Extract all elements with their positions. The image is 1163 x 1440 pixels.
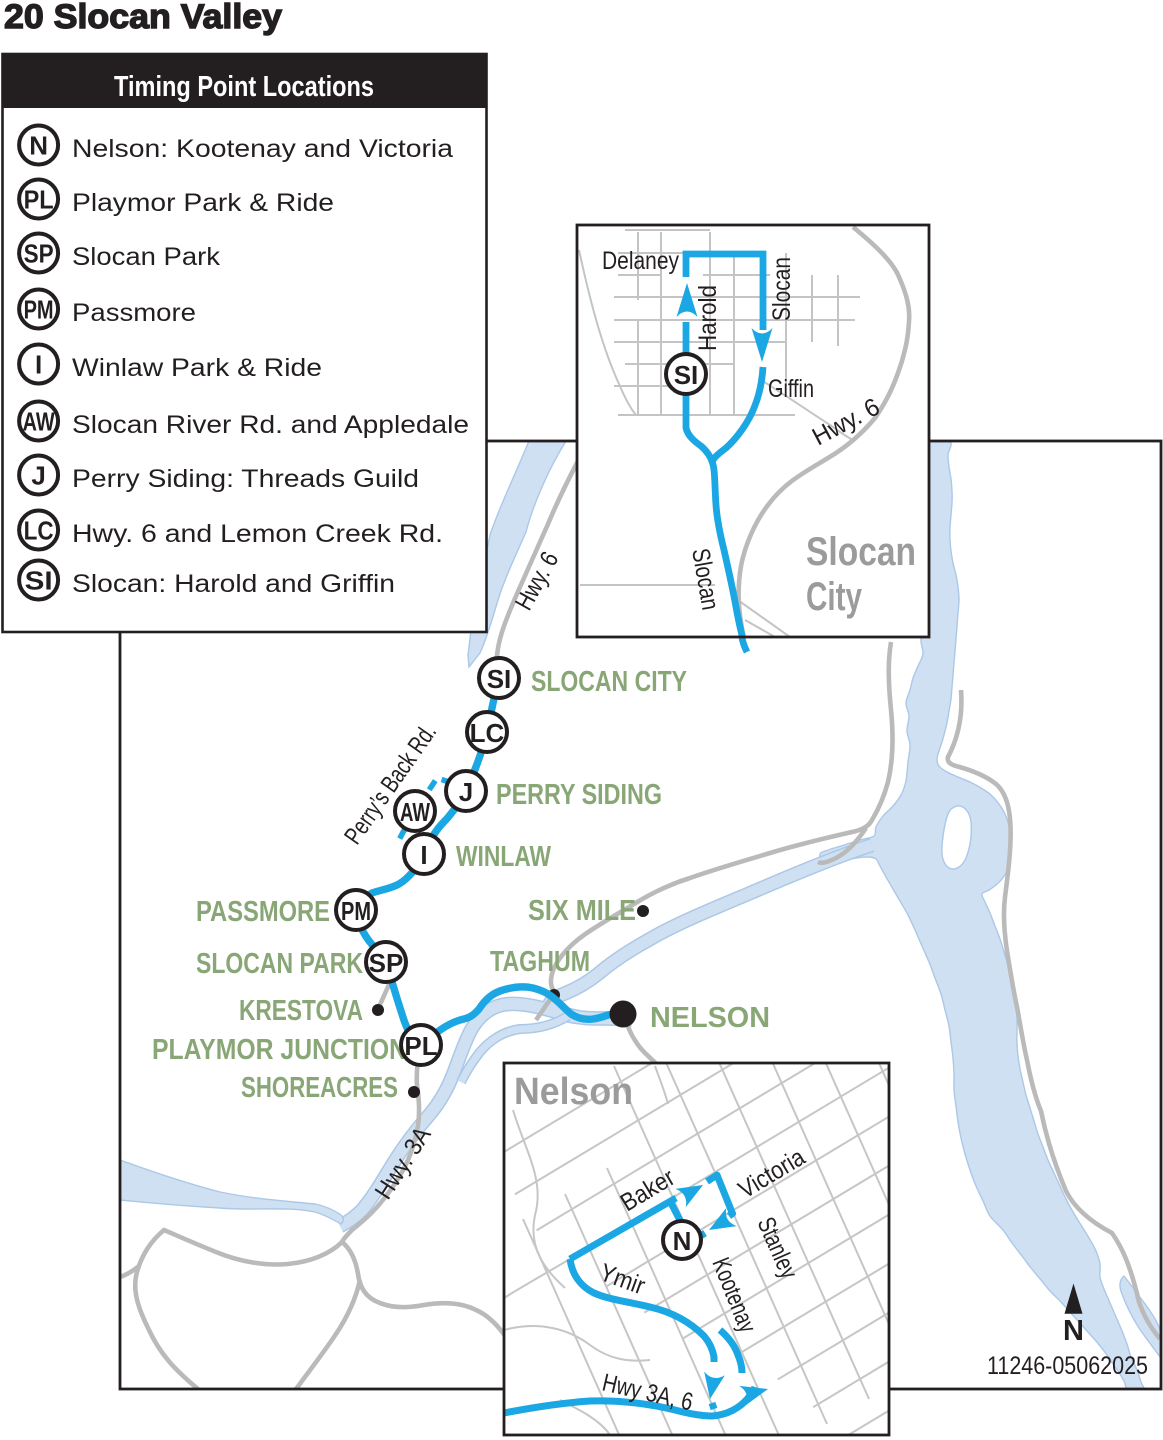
svg-text:J: J [459,777,473,807]
svg-text:PERRY SIDING: PERRY SIDING [496,779,662,811]
svg-text:LC: LC [24,516,54,546]
svg-text:PASSMORE: PASSMORE [196,896,330,928]
svg-text:Slocan River Rd. and Appledale: Slocan River Rd. and Appledale [72,411,469,439]
svg-text:11246-05062025: 11246-05062025 [987,1352,1148,1380]
svg-text:PM: PM [341,896,371,926]
svg-text:J: J [31,461,45,491]
svg-text:Giffin: Giffin [768,375,814,403]
svg-text:LC: LC [470,718,505,748]
svg-text:PM: PM [24,295,54,325]
svg-text:NELSON: NELSON [650,1002,770,1034]
svg-text:Slocan: Slocan [768,257,796,321]
svg-text:SIX MILE: SIX MILE [528,895,636,927]
svg-text:Delaney: Delaney [602,247,679,275]
svg-text:N: N [1063,1315,1084,1347]
svg-text:I: I [420,840,427,870]
svg-text:Nelson: Kootenay and Victoria: Nelson: Kootenay and Victoria [72,135,453,163]
svg-text:Timing Point Locations: Timing Point Locations [114,71,374,103]
svg-text:SLOCAN PARK: SLOCAN PARK [196,948,363,980]
svg-text:Winlaw Park & Ride: Winlaw Park & Ride [72,354,322,382]
svg-text:City: City [806,575,863,619]
svg-text:N: N [29,131,48,161]
svg-text:Hwy. 6 and Lemon Creek Rd.: Hwy. 6 and Lemon Creek Rd. [72,520,443,548]
svg-text:TAGHUM: TAGHUM [490,946,590,978]
svg-text:Slocan: Harold and Griffin: Slocan: Harold and Griffin [72,570,395,598]
svg-text:PL: PL [404,1031,437,1061]
svg-text:PLAYMOR JUNCTION: PLAYMOR JUNCTION [152,1034,407,1066]
svg-text:SI: SI [25,566,53,596]
svg-text:SP: SP [24,239,54,269]
svg-text:Playmor Park & Ride: Playmor Park & Ride [72,189,334,217]
svg-text:PL: PL [24,185,54,215]
svg-text:SP: SP [369,948,404,978]
svg-text:SI: SI [674,360,699,390]
svg-text:20 Slocan Valley: 20 Slocan Valley [4,0,282,36]
svg-text:Slocan Park: Slocan Park [72,243,221,271]
svg-text:KRESTOVA: KRESTOVA [239,995,363,1027]
svg-text:I: I [35,350,42,380]
svg-text:SHOREACRES: SHOREACRES [241,1072,398,1104]
svg-text:WINLAW: WINLAW [456,841,551,873]
svg-text:SLOCAN CITY: SLOCAN CITY [531,666,687,698]
svg-text:Perry Siding: Threads Guild: Perry Siding: Threads Guild [72,465,419,493]
svg-text:Harold: Harold [694,285,722,351]
svg-text:N: N [673,1226,692,1256]
svg-text:Slocan: Slocan [806,530,916,574]
svg-text:AW: AW [400,797,430,827]
svg-text:AW: AW [23,407,55,437]
svg-text:Nelson: Nelson [514,1071,633,1113]
svg-text:SI: SI [487,664,512,694]
svg-text:Passmore: Passmore [72,299,196,327]
